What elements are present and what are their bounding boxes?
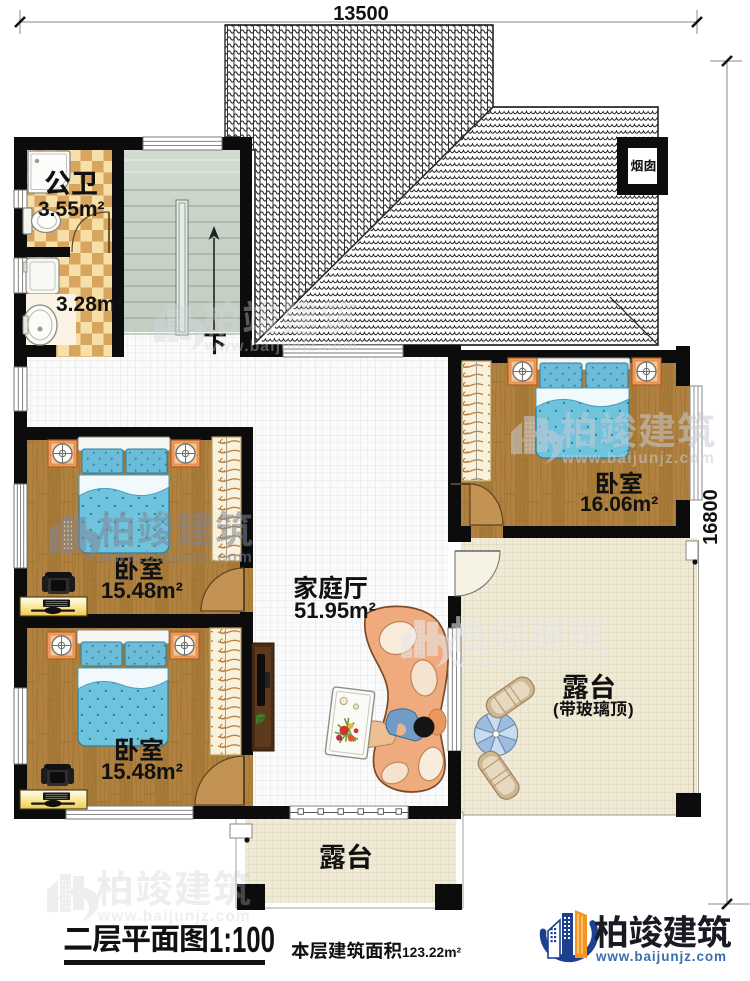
svg-text:15.48m²: 15.48m² (101, 759, 183, 784)
svg-text:16.06m²: 16.06m² (580, 493, 658, 516)
svg-text:13500: 13500 (333, 3, 389, 25)
svg-text:51.95m²: 51.95m² (294, 598, 376, 623)
svg-text:1:100: 1:100 (209, 919, 275, 960)
svg-text:(: ( (553, 700, 559, 719)
svg-text:www.baijunjz.com: www.baijunjz.com (595, 949, 727, 964)
svg-text:123.22m²: 123.22m² (402, 945, 461, 960)
svg-text:3.55m²: 3.55m² (38, 198, 105, 221)
svg-text:www.baijunjz.com: www.baijunjz.com (204, 338, 358, 355)
svg-text:www.baijunjz.com: www.baijunjz.com (451, 654, 605, 671)
svg-text:www.baijunjz.com: www.baijunjz.com (561, 450, 715, 467)
svg-text:15.48m²: 15.48m² (101, 578, 183, 603)
svg-text:3.28m²: 3.28m² (56, 293, 123, 316)
svg-text:16800: 16800 (700, 489, 722, 545)
svg-text:): ) (628, 700, 634, 719)
svg-text:www.baijunjz.com: www.baijunjz.com (99, 549, 253, 566)
